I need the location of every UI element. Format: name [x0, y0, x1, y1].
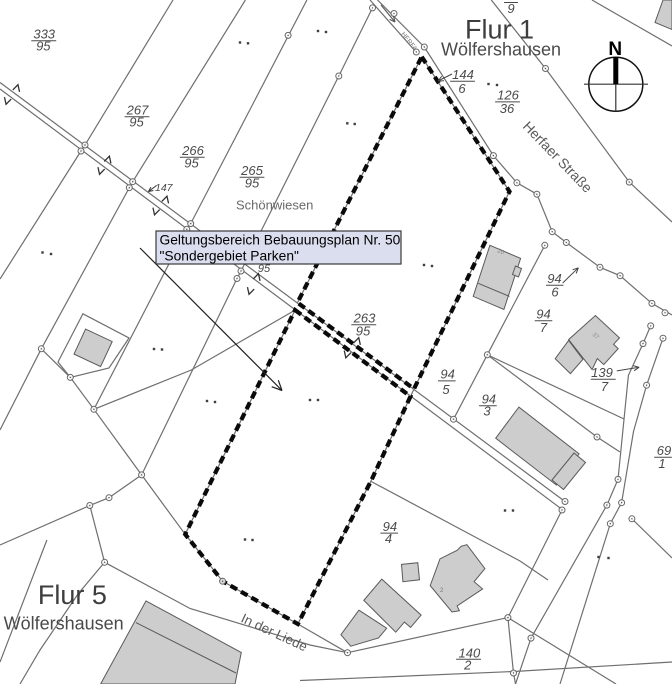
svg-text:144: 144 — [452, 67, 474, 82]
svg-text:5: 5 — [442, 382, 450, 397]
svg-text:7: 7 — [601, 379, 609, 394]
svg-text:Schönwiesen: Schönwiesen — [236, 198, 313, 213]
svg-text:"Sondergebiet Parken": "Sondergebiet Parken" — [160, 249, 300, 264]
svg-text:36: 36 — [500, 101, 515, 116]
svg-text:N: N — [608, 39, 622, 60]
svg-text:95: 95 — [356, 324, 371, 339]
svg-text:7: 7 — [540, 320, 548, 335]
svg-text:Wölfershausen: Wölfershausen — [4, 613, 124, 633]
svg-text:Wölfershausen: Wölfershausen — [441, 40, 561, 60]
svg-text:6: 6 — [458, 81, 466, 96]
svg-text:95: 95 — [258, 263, 271, 275]
svg-text:6: 6 — [551, 285, 559, 300]
svg-text:147: 147 — [155, 182, 174, 194]
svg-text:Geltungsbereich Bebauungsplan: Geltungsbereich Bebauungsplan Nr. 50 — [160, 233, 401, 248]
svg-text:94: 94 — [440, 367, 454, 382]
svg-text:1: 1 — [658, 456, 665, 471]
svg-text:Flur 5: Flur 5 — [38, 580, 107, 610]
svg-text:139: 139 — [591, 365, 613, 380]
